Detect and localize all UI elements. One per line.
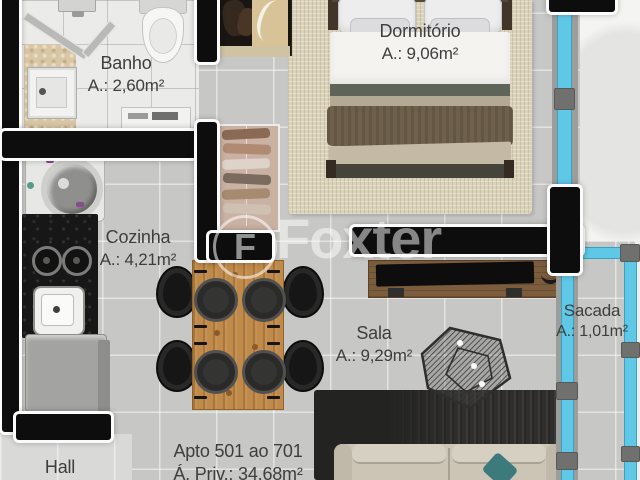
folded-clothes [222,188,270,200]
room-area: A.: 9,06m² [335,43,505,65]
apartment-private-area: Á. Priv.: 34,68m² [140,463,336,480]
room-area: A.: 4,21m² [92,249,184,271]
folded-clothes [222,158,270,170]
footboard [332,164,508,178]
bed-post [326,160,336,178]
cooktop-burner [62,246,92,276]
wall-entry [16,414,111,440]
wall-bath-bottom [2,131,197,158]
plate [194,278,238,322]
glass-connector [556,452,578,470]
shelf-item [128,113,148,119]
label-banho: Banho A.: 2,60m² [82,52,170,97]
bed-post [504,160,514,178]
room-name: Banho [82,52,170,75]
railing-post [621,342,640,358]
dining-chair [158,342,196,390]
room-area: A.: 9,29m² [328,345,420,367]
cutlery [194,270,207,273]
glass-connector [556,382,578,400]
cutlery [194,325,207,328]
label-dormitorio: Dormitório A.: 9,06m² [335,20,505,65]
wood-knot [252,344,258,350]
cutlery [194,342,207,345]
dining-chair [284,342,322,390]
dining-chair [158,268,196,316]
room-area: A.: 1,01m² [546,322,638,343]
room-name: Cozinha [92,226,184,249]
washer-detail [46,158,54,163]
cutlery [267,325,280,328]
plate [242,350,286,394]
console-foot [506,288,522,297]
bed-blanket [327,106,513,146]
label-hall: Hall [28,456,92,479]
label-apartment: Apto 501 ao 701 Á. Priv.: 34,68m² [140,440,336,480]
wall-left [2,0,19,432]
fridge [25,334,107,412]
dining-chair [284,268,322,316]
vanity-drain [39,88,46,95]
label-sacada: Sacada A.: 1,01m² [546,300,638,343]
cutlery [194,396,207,399]
floor-plan: Banho A.: 2,60m² Cozinha A.: 4,21m² Dorm… [0,0,640,480]
room-name: Dormitório [335,20,505,43]
washer-knob [27,182,34,189]
foxter-logo-letter: F [234,226,256,268]
railing-post [621,446,640,462]
window-handle [554,88,575,110]
washer-drum [41,158,103,220]
sofa-cushion [352,444,446,464]
wall-window-top [549,0,615,12]
shower-knob [72,11,84,17]
watermark-text: Foxter [276,206,441,271]
railing-post [620,244,640,262]
room-area: A.: 2,60m² [82,75,170,97]
cutlery [267,342,280,345]
room-name: Hall [28,456,92,479]
foxter-logo-icon: F [213,215,277,279]
plate [194,350,238,394]
closet-shelf-edge [218,46,290,57]
room-name: Sala [328,322,420,345]
sofa-seam [448,448,450,480]
fridge-door-edge [98,340,110,414]
apartment-units: Apto 501 ao 701 [140,440,336,463]
folded-clothes [223,143,271,155]
washer-detail [76,202,84,207]
sofa-arm [334,444,352,480]
kitchen-sink-drain [53,306,60,313]
toilet-bowl-inner [149,18,177,54]
wall-window-bottom [550,187,580,273]
folded-clothes [223,203,271,215]
exterior-area [580,0,640,241]
wall-bath-right [197,0,217,62]
label-cozinha: Cozinha A.: 4,21m² [92,226,184,271]
wood-knot [214,330,220,336]
label-sala: Sala A.: 9,29m² [328,322,420,367]
console-foot [388,288,404,297]
washer-drum-center [58,178,69,189]
plate [242,278,286,322]
shelf-item [152,112,178,120]
cutlery [267,396,280,399]
room-name: Sacada [546,300,638,322]
cooktop-burner [32,246,62,276]
coffee-table [420,326,512,412]
